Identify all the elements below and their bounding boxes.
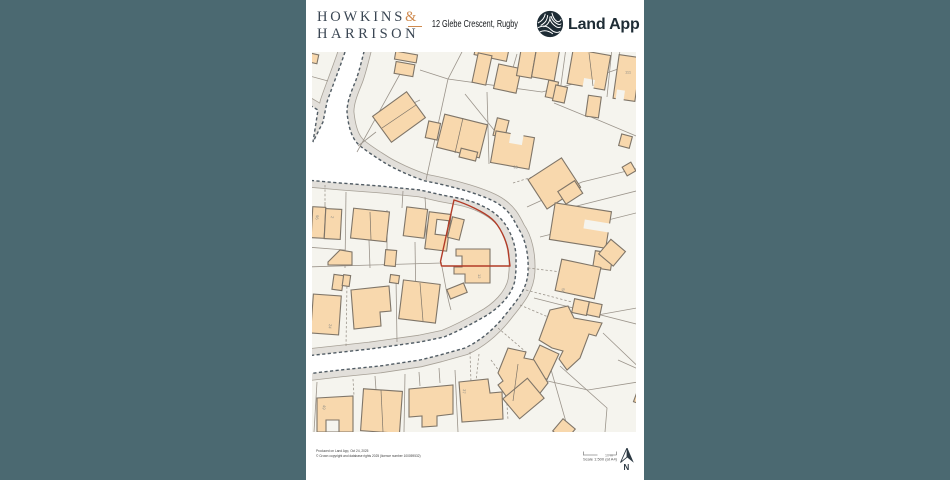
svg-text:111: 111 [625,70,632,75]
svg-text:12: 12 [477,274,482,279]
svg-text:Scale 1:500 (at A4): Scale 1:500 (at A4) [583,456,618,461]
svg-text:N: N [624,463,630,472]
